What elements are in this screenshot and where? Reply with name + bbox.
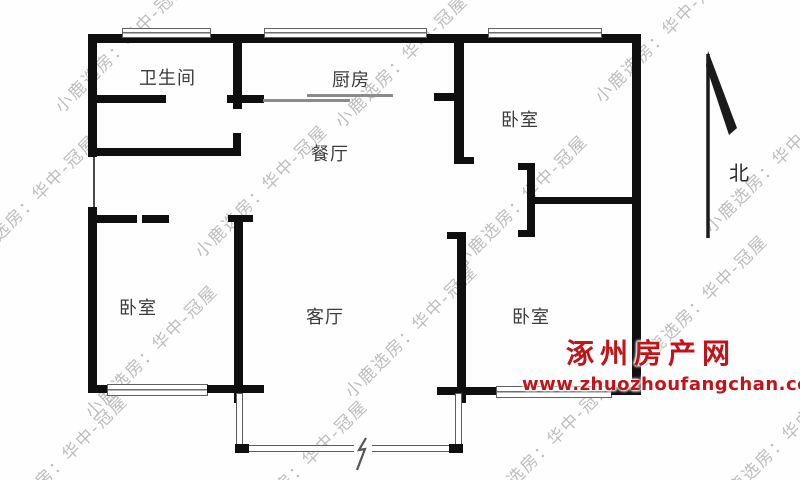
wall-bedroom-bl-bottom-b — [207, 385, 264, 393]
north-arrow-icon — [694, 44, 746, 244]
wall-bathroom-bottom — [88, 95, 166, 103]
site-name: 涿州房产网 — [522, 332, 780, 372]
floor-plan: 小鹿选房：华中-冠屋小鹿选房：华中-冠屋小鹿选房：华中-冠屋小鹿选房：华中-冠屋… — [0, 0, 800, 480]
site-url: www.zhuozhoufangchan.com — [522, 374, 780, 395]
watermark-layer: 小鹿选房：华中-冠屋小鹿选房：华中-冠屋小鹿选房：华中-冠屋小鹿选房：华中-冠屋… — [0, 0, 800, 480]
balcony-rail-left — [236, 393, 243, 446]
room-label-bathroom: 卫生间 — [139, 64, 196, 90]
wall-bedroom-tr-left-cap — [464, 157, 474, 164]
balcony-break-mark — [350, 436, 380, 474]
window-top-bedroom — [488, 28, 602, 38]
balcony-corner-left — [235, 444, 249, 453]
wall-bedroom-bl-bottom-a — [88, 385, 108, 393]
window-bedroom-bl — [107, 384, 208, 396]
wall-living-right — [457, 232, 466, 403]
wall-bedroom-br-bottom-a — [437, 387, 497, 395]
watermark-text: 小鹿选房：华中-冠屋 — [0, 388, 132, 480]
wall-living-left — [234, 215, 243, 403]
room-label-bedroom-top-right: 卧室 — [501, 106, 539, 132]
wall-right-bedrooms-divider — [535, 197, 635, 204]
wall-door-pier-cap-bottom — [518, 230, 527, 237]
wall-kitchen-stub — [434, 93, 455, 101]
window-top-bathroom — [122, 28, 211, 38]
wall-bedroom-bl-top-a — [92, 215, 137, 223]
room-label-living: 客厅 — [306, 303, 344, 329]
balcony-rail-right — [455, 393, 462, 446]
room-label-bedroom-bottom-right: 卧室 — [512, 303, 550, 329]
room-label-bedroom-bottom-left: 卧室 — [119, 294, 157, 320]
watermark-text: 小鹿选房：华中-冠屋 — [0, 128, 102, 272]
wall-dining-stub-up — [233, 133, 241, 148]
room-label-dining: 餐厅 — [311, 140, 349, 166]
north-label: 北 — [729, 157, 749, 186]
wall-dining-bottom — [88, 148, 241, 156]
wall-bedroom-bl-top-b — [142, 215, 169, 223]
wall-door-pier — [527, 163, 535, 237]
balcony-corner-right — [449, 444, 463, 453]
window-top-kitchen — [264, 28, 427, 38]
wall-bedroom-tr-left — [454, 43, 464, 164]
wall-door-pier-cap-top — [518, 163, 527, 170]
wall-left-lower — [88, 207, 97, 393]
site-branding: 涿州房产网 www.zhuozhoufangchan.com — [522, 332, 780, 395]
kitchen-sliding-door-line-2 — [263, 99, 350, 102]
wall-left-thin — [93, 157, 95, 209]
wall-hall-cross-stub — [227, 95, 264, 103]
kitchen-sliding-door-line-1 — [307, 94, 393, 97]
room-label-kitchen: 厨房 — [332, 66, 370, 92]
